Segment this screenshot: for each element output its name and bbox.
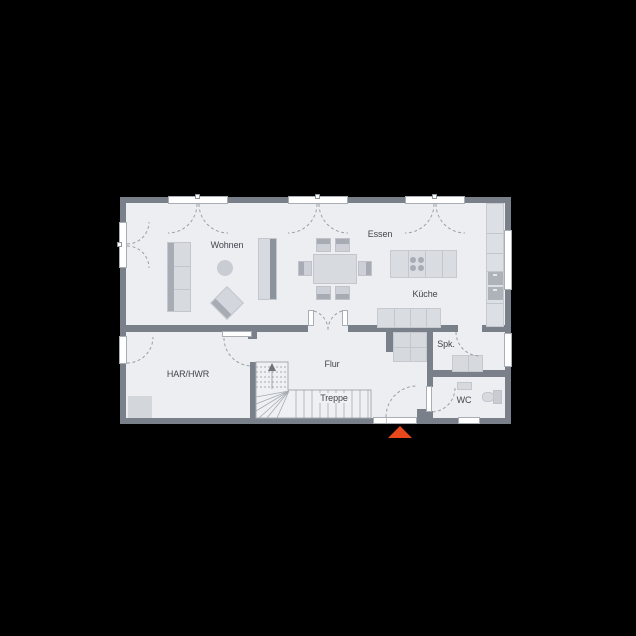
pantry-shelf-divider xyxy=(468,356,469,371)
door-leaf-double-right xyxy=(342,310,348,326)
counter-divider xyxy=(410,309,411,327)
window-right-kueche xyxy=(504,230,512,290)
door-leaf-har xyxy=(222,331,252,337)
cabinet-divider xyxy=(487,303,503,304)
wc-toilet-bowl xyxy=(482,392,494,402)
dining-chair xyxy=(335,286,350,300)
island-divider xyxy=(408,251,409,277)
sideboard-back xyxy=(270,239,276,299)
cooktop-burner xyxy=(410,257,416,263)
oven-handle xyxy=(493,274,497,276)
cooktop-burner xyxy=(418,265,424,271)
wc-toilet-tank xyxy=(493,390,502,404)
chair-back xyxy=(317,239,330,244)
sideboard xyxy=(258,238,277,300)
room-label-wohnen: Wohnen xyxy=(211,240,244,250)
counter-divider xyxy=(394,309,395,327)
counter-divider xyxy=(426,309,427,327)
dining-chair xyxy=(358,261,372,276)
room-label-essen: Essen xyxy=(368,229,393,239)
chair-back xyxy=(317,294,330,299)
room-label-wc: WC xyxy=(457,395,472,405)
wall-wohnen-flur xyxy=(126,325,308,332)
island-divider xyxy=(442,251,443,277)
dining-chair xyxy=(298,261,312,276)
window-pivot-icon xyxy=(315,194,320,199)
chair-back xyxy=(366,262,371,275)
dining-table xyxy=(313,254,357,284)
entrance-direction-arrow-icon xyxy=(388,426,412,438)
window-pivot-icon xyxy=(432,194,437,199)
dining-chair xyxy=(316,238,331,252)
window-pivot-icon xyxy=(195,194,200,199)
room-label-spk: Spk. xyxy=(437,339,455,349)
chair-back xyxy=(299,262,304,275)
cooktop-burner xyxy=(418,257,424,263)
entrance-sill-divider xyxy=(386,418,387,423)
sofa-cushion-divider xyxy=(174,266,190,267)
utility-equipment xyxy=(128,396,152,418)
floor-plan-canvas: Wohnen Essen Küche Spk. HAR/HWR Flur Tre… xyxy=(0,0,636,636)
island-divider xyxy=(425,251,426,277)
kitchen-island xyxy=(390,250,457,278)
room-label-treppe: Treppe xyxy=(318,393,350,403)
room-label-flur: Flur xyxy=(324,359,339,369)
kitchen-counter xyxy=(377,308,441,328)
dining-chair xyxy=(316,286,331,300)
coffee-table xyxy=(217,260,233,276)
room-label-kueche: Küche xyxy=(412,289,437,299)
room-label-har-hwr: HAR/HWR xyxy=(167,369,209,379)
wc-sink xyxy=(457,382,472,390)
wall-spk-left xyxy=(427,332,433,372)
sofa-cushion-divider xyxy=(174,289,190,290)
wardrobe-divider xyxy=(394,347,426,348)
entrance-door-sill xyxy=(373,417,417,424)
wall-stub-flur xyxy=(386,332,393,352)
wall-stairs-left xyxy=(250,362,256,418)
chair-back xyxy=(336,239,349,244)
pantry-shelf xyxy=(452,355,483,372)
window-wc xyxy=(458,417,480,424)
oven-appliance xyxy=(488,287,503,300)
sofa xyxy=(167,242,191,312)
cabinet-divider xyxy=(487,253,503,254)
door-leaf-wc xyxy=(426,386,432,412)
chair-back xyxy=(336,294,349,299)
window-right-spk xyxy=(504,333,512,367)
tall-cabinet-column xyxy=(486,203,504,327)
cabinet-divider xyxy=(487,233,503,234)
window-left-har xyxy=(119,336,127,364)
oven-handle xyxy=(493,289,497,291)
sofa-backrest xyxy=(168,243,174,311)
wardrobe-cabinet xyxy=(393,332,427,362)
oven-appliance xyxy=(488,272,503,285)
cooktop-burner xyxy=(410,265,416,271)
door-leaf-double-left xyxy=(308,310,314,326)
window-pivot-icon xyxy=(117,242,122,247)
dining-chair xyxy=(335,238,350,252)
